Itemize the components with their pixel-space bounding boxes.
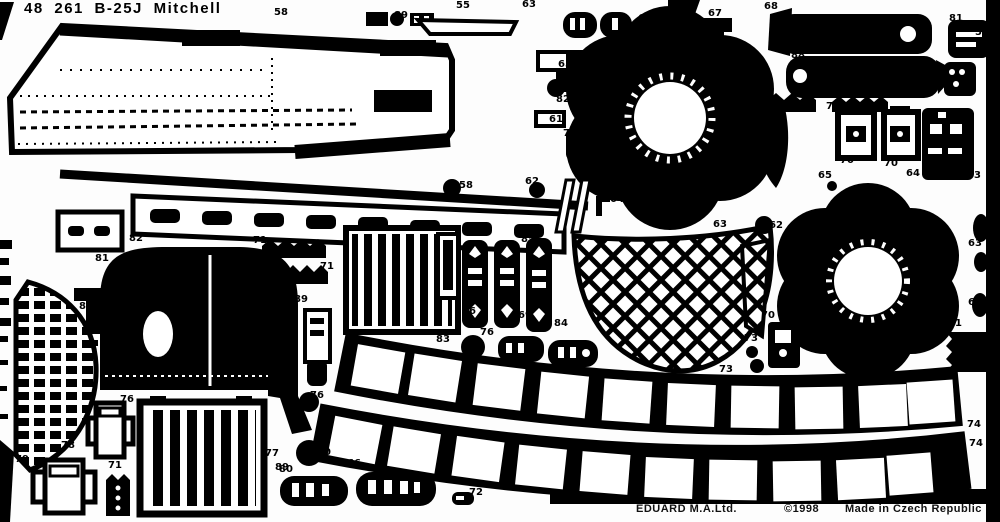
part-number-label: 69: [638, 14, 652, 24]
part-number-label: 74: [969, 439, 983, 449]
part-number-label: 71: [948, 319, 962, 329]
part-number-label: 63: [967, 171, 981, 181]
part-number-label: 71: [108, 461, 122, 471]
part-number-label: 80: [79, 302, 93, 312]
part-number-label: 81: [949, 14, 963, 24]
part-number-label: 82: [556, 95, 570, 105]
part-number-label: 70: [884, 159, 898, 169]
part-number-label: 70: [317, 448, 331, 458]
part-number-label: 61: [549, 115, 563, 125]
part-number-label: 65: [558, 60, 572, 70]
part-number-label: 71: [253, 236, 267, 246]
part-number-label: 76: [120, 395, 134, 405]
part-number-label: 83: [436, 335, 450, 345]
part-number-label: 85: [521, 235, 535, 245]
photo-etch-sheet: 48 261 B-25J Mitchell: [0, 0, 1000, 522]
part-labels-layer: 5889556369676888815971716582617370706465…: [0, 0, 1000, 522]
part-number-label: 79: [15, 455, 29, 465]
part-number-label: 64: [906, 169, 920, 179]
part-number-label: 89: [394, 11, 408, 21]
part-number-label: 71: [320, 262, 334, 272]
part-number-label: 66: [347, 459, 361, 469]
part-number-label: 70: [840, 156, 854, 166]
origin-text: Made in Czech Republic: [845, 503, 982, 515]
part-number-label: 62: [525, 177, 539, 187]
part-number-label: 63: [968, 239, 982, 249]
part-number-label: 89: [275, 463, 289, 473]
part-number-label: 58: [459, 181, 473, 191]
copyright-text: ©1998: [784, 503, 819, 515]
part-number-label: 70: [761, 311, 775, 321]
part-number-label: 89: [294, 295, 308, 305]
part-number-label: 62: [687, 210, 701, 220]
part-number-label: 77: [265, 449, 279, 459]
part-number-label: 81: [95, 254, 109, 264]
part-number-label: 58: [274, 8, 288, 18]
part-number-label: 62: [769, 221, 783, 231]
part-number-label: 76: [310, 391, 324, 401]
part-number-label: 71: [826, 102, 840, 112]
part-number-label: 73: [744, 334, 758, 344]
part-number-label: 63: [713, 220, 727, 230]
part-number-label: 84: [554, 319, 568, 329]
part-number-label: 68: [764, 2, 778, 12]
part-number-label: 63: [522, 0, 536, 10]
part-number-label: 59: [975, 28, 989, 38]
part-number-label: 76: [480, 328, 494, 338]
part-number-label: 64: [610, 195, 624, 205]
part-number-label: 72: [469, 488, 483, 498]
part-number-label: 74: [967, 420, 981, 430]
part-number-label: 55: [456, 1, 470, 11]
maker-text: EDUARD M.A.Ltd.: [636, 503, 737, 515]
part-number-label: 65: [818, 171, 832, 181]
part-number-label: 69: [518, 311, 532, 321]
part-number-label: 86: [462, 307, 476, 317]
footer: EDUARD M.A.Ltd. ©1998 Made in Czech Repu…: [0, 503, 1000, 521]
part-number-label: 65: [635, 211, 649, 221]
part-number-label: 73: [719, 365, 733, 375]
part-number-label: 88: [791, 51, 805, 61]
part-number-label: 73: [563, 129, 577, 139]
part-number-label: 67: [708, 9, 722, 19]
part-number-label: 78: [61, 441, 75, 451]
part-number-label: 63: [968, 298, 982, 308]
part-number-label: 82: [129, 234, 143, 244]
part-number-label: 71: [736, 90, 750, 100]
